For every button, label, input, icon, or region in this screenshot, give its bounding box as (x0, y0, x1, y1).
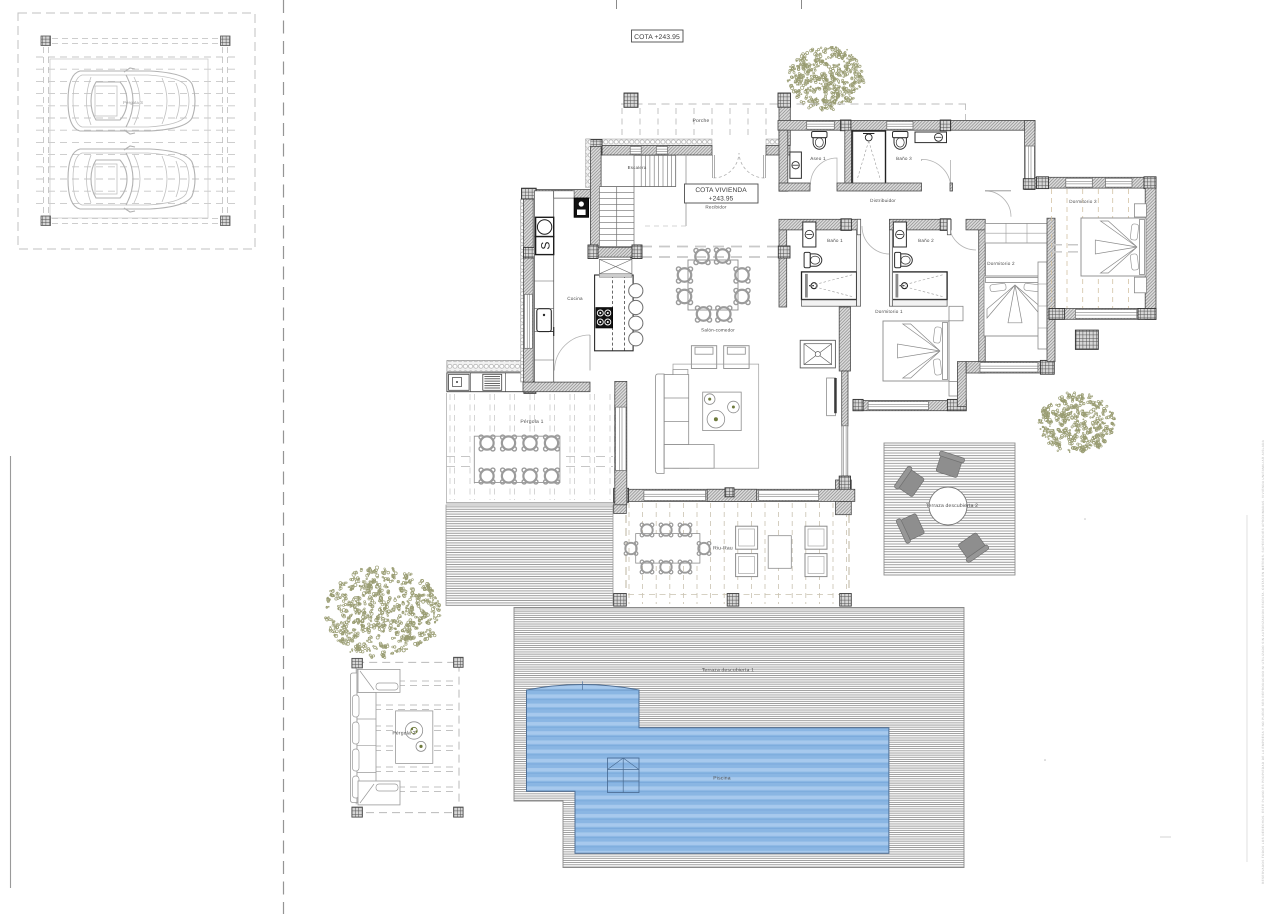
svg-text:Baño 1: Baño 1 (827, 238, 843, 243)
svg-text:RESERVADOS TODOS LOS DERECHOS.: RESERVADOS TODOS LOS DERECHOS. ESTE PLAN… (1261, 439, 1265, 884)
svg-text:S: S (538, 242, 552, 250)
svg-text:Escalera: Escalera (628, 165, 647, 170)
svg-text:Terraza descubierta 2: Terraza descubierta 2 (926, 503, 978, 509)
svg-text:Pérgola 2: Pérgola 2 (392, 731, 415, 737)
svg-text:Aseo 1: Aseo 1 (810, 156, 826, 161)
svg-text:+243.95: +243.95 (709, 196, 734, 203)
svg-text:Distribuidor: Distribuidor (870, 198, 896, 203)
svg-text:Riu-Rau: Riu-Rau (713, 546, 733, 552)
svg-text:Pérgola 3: Pérgola 3 (123, 100, 143, 105)
svg-text:COTA VIVIENDA: COTA VIVIENDA (695, 187, 747, 194)
svg-text:Salón-comedor: Salón-comedor (701, 328, 735, 333)
svg-text:Piscina: Piscina (713, 776, 731, 782)
svg-text:Dormitorio 2: Dormitorio 2 (987, 261, 1015, 266)
svg-text:Recibidor: Recibidor (705, 205, 726, 210)
svg-text:Cocina: Cocina (567, 296, 583, 301)
svg-text:Porche: Porche (692, 118, 709, 124)
svg-text:Terraza descubierta 1: Terraza descubierta 1 (702, 668, 754, 674)
svg-text:COTA +243.95: COTA +243.95 (634, 34, 680, 41)
svg-text:Baño 3: Baño 3 (896, 156, 912, 161)
svg-text:Pérgola 1: Pérgola 1 (520, 419, 543, 425)
svg-text:Baño 2: Baño 2 (918, 238, 934, 243)
svg-text:Dormitorio 3: Dormitorio 3 (1069, 199, 1097, 204)
svg-text:Dormitorio 1: Dormitorio 1 (875, 309, 903, 314)
